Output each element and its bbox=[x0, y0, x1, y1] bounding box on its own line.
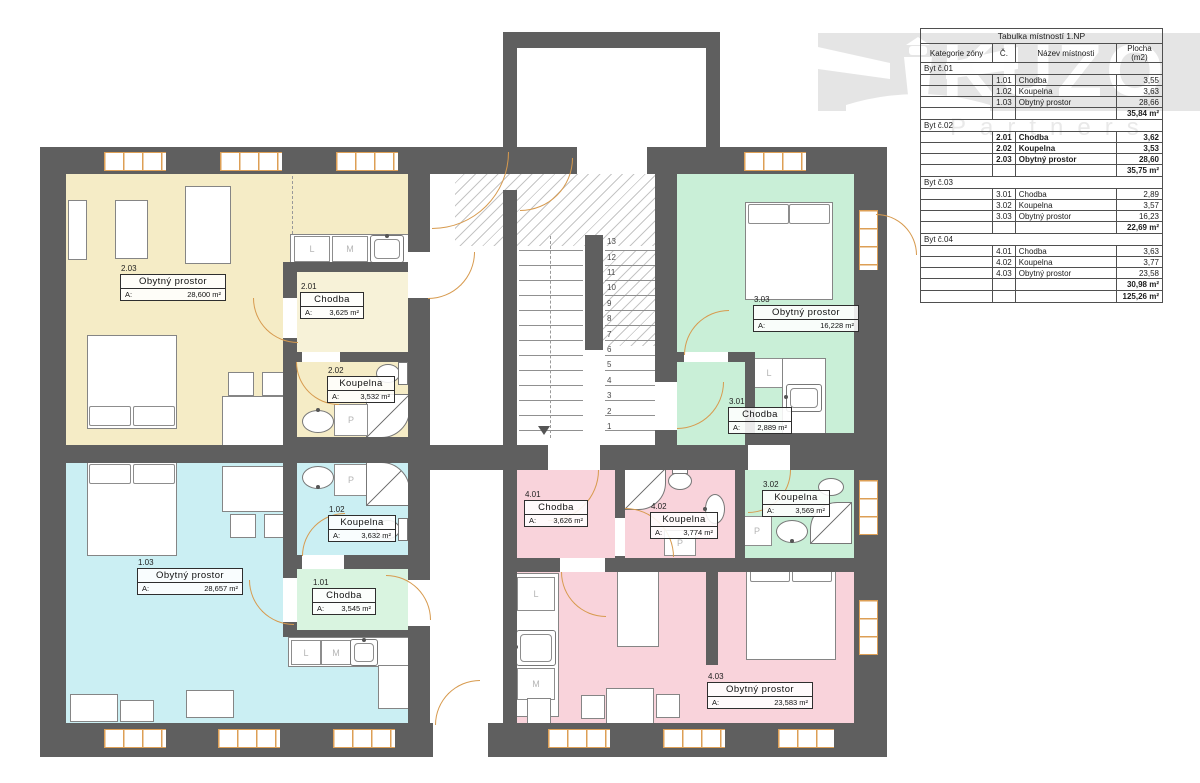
room-area-cell: 3,57 bbox=[1116, 200, 1162, 211]
zone-cell bbox=[921, 257, 993, 268]
window bbox=[104, 152, 166, 171]
sofa bbox=[186, 690, 234, 718]
room-row: 3.02Koupelna3,57 bbox=[921, 200, 1163, 211]
room-label-2-02: 2.02 Koupelna A:3,532 m² bbox=[327, 366, 395, 403]
room-no-cell: 1.02 bbox=[993, 86, 1016, 97]
room-row: 1.03Obytný prostor28,66 bbox=[921, 97, 1163, 108]
room-row: 1.02Koupelna3,63 bbox=[921, 86, 1163, 97]
stair-step-number: 10 bbox=[607, 284, 616, 292]
room-area-cell: 3,63 bbox=[1116, 246, 1162, 257]
chair bbox=[581, 695, 605, 719]
kitchen-sink bbox=[350, 639, 378, 666]
zone-cell bbox=[921, 154, 993, 165]
room-row: 2.03Obytný prostor28,60 bbox=[921, 154, 1163, 165]
room-name: Koupelna bbox=[329, 516, 395, 530]
window bbox=[218, 729, 280, 748]
room-no-cell: 2.02 bbox=[993, 143, 1016, 154]
area-value: 3,632 m² bbox=[361, 531, 391, 540]
wall-entrance-top bbox=[503, 32, 720, 48]
room-label-3-02: 3.02 Koupelna A:3,569 m² bbox=[762, 480, 830, 517]
room-number: 3.02 bbox=[763, 480, 830, 489]
area-value: 28,657 m² bbox=[204, 584, 238, 593]
area-label: A: bbox=[712, 698, 719, 707]
area-value: 3,532 m² bbox=[360, 392, 390, 401]
room-no-cell: 3.01 bbox=[993, 189, 1016, 200]
stair-step-number: 7 bbox=[607, 331, 611, 339]
zone-label: Byt č.01 bbox=[921, 63, 1163, 75]
sofa bbox=[617, 567, 659, 647]
window bbox=[744, 152, 806, 171]
stair-step-number: 9 bbox=[607, 300, 611, 308]
room-label-1-02: 1.02 Koupelna A:3,632 m² bbox=[328, 505, 396, 542]
window bbox=[859, 600, 878, 655]
room-name: Chodba bbox=[301, 293, 363, 307]
zone-label: Byt č.04 bbox=[921, 234, 1163, 246]
zone-row: Byt č.01 bbox=[921, 63, 1163, 75]
wall-byt4-h bbox=[503, 558, 854, 572]
subtotal-value: 30,98 m² bbox=[1116, 279, 1162, 291]
zone-row: Byt č.04 bbox=[921, 234, 1163, 246]
col-header-area: Plocha (m2) bbox=[1116, 44, 1162, 63]
stair-step-number: 11 bbox=[607, 269, 615, 277]
room-row: 2.02Koupelna3,53 bbox=[921, 143, 1163, 154]
wall-byt2-internal-h1 bbox=[283, 262, 408, 272]
room-no-cell: 4.03 bbox=[993, 268, 1016, 279]
room-no-cell: 1.01 bbox=[993, 75, 1016, 86]
window bbox=[333, 729, 395, 748]
wall-byt3-kitchen bbox=[755, 433, 854, 445]
room-name-cell: Chodba bbox=[1015, 189, 1116, 200]
bed-pillow bbox=[133, 464, 175, 484]
area-label: A: bbox=[317, 604, 324, 613]
total-row: 125,26 m² bbox=[921, 291, 1163, 303]
room-name-cell: Chodba bbox=[1015, 246, 1116, 257]
kitchen-zone-line bbox=[292, 176, 293, 234]
empty-cell bbox=[921, 222, 993, 234]
washing-machine-marker: P bbox=[742, 516, 772, 546]
room-no-cell: 4.01 bbox=[993, 246, 1016, 257]
door-opening bbox=[748, 445, 790, 470]
zone-label: Byt č.02 bbox=[921, 120, 1163, 132]
toilet-tank bbox=[398, 518, 408, 541]
stair-direction-arrow bbox=[538, 426, 550, 435]
bed-pillow bbox=[133, 406, 175, 426]
room-name-cell: Koupelna bbox=[1015, 257, 1116, 268]
room-area-cell: 3,62 bbox=[1116, 132, 1162, 143]
room-name-cell: Obytný prostor bbox=[1015, 154, 1116, 165]
area-label: A: bbox=[333, 531, 340, 540]
kitchen-counter bbox=[378, 665, 410, 709]
room-name-cell: Chodba bbox=[1015, 75, 1116, 86]
stair-step-number: 3 bbox=[607, 392, 611, 400]
sideboard bbox=[70, 694, 118, 722]
room-name: Obytný prostor bbox=[138, 569, 242, 583]
room-name-cell: Koupelna bbox=[1015, 86, 1116, 97]
room-no-cell: 2.03 bbox=[993, 154, 1016, 165]
entrance-door-opening bbox=[577, 147, 647, 174]
empty-cell bbox=[993, 165, 1016, 177]
room-name: Koupelna bbox=[328, 377, 394, 391]
wall-entrance-right bbox=[706, 32, 720, 147]
stair-step-number: 6 bbox=[607, 346, 611, 354]
zone-cell bbox=[921, 189, 993, 200]
area-label: A: bbox=[332, 392, 339, 401]
stair-step-number: 1 bbox=[607, 423, 611, 431]
empty-cell bbox=[1015, 165, 1116, 177]
kitchen-sink bbox=[516, 630, 556, 666]
wall-byt-divider-thick bbox=[283, 437, 408, 463]
zone-cell bbox=[921, 132, 993, 143]
room-area-cell: 16,23 bbox=[1116, 211, 1162, 222]
room-name: Chodba bbox=[525, 501, 587, 515]
zone-cell bbox=[921, 268, 993, 279]
room-number: 1.03 bbox=[138, 558, 243, 567]
stair-step-number: 4 bbox=[607, 377, 611, 385]
area-value: 3,569 m² bbox=[795, 506, 825, 515]
room-area-cell: 3,77 bbox=[1116, 257, 1162, 268]
empty-cell bbox=[1015, 279, 1116, 291]
wall-byt1-internal-h2 bbox=[283, 630, 408, 637]
room-row: 4.01Chodba3,63 bbox=[921, 246, 1163, 257]
stair-step-number: 5 bbox=[607, 361, 611, 369]
col-header-number: Č. bbox=[993, 44, 1016, 63]
area-value: 3,545 m² bbox=[341, 604, 371, 613]
stair-flight-left bbox=[519, 236, 583, 438]
empty-cell bbox=[921, 108, 993, 120]
room-no-cell: 3.03 bbox=[993, 211, 1016, 222]
fridge-marker: L bbox=[291, 640, 321, 665]
bed-pillow bbox=[89, 464, 131, 484]
zone-cell bbox=[921, 75, 993, 86]
wall-stair-newel bbox=[585, 235, 603, 350]
room-label-4-01: 4.01 Chodba A:3,626 m² bbox=[524, 490, 588, 527]
zone-cell bbox=[921, 143, 993, 154]
room-number: 3.03 bbox=[754, 295, 859, 304]
toilet-tank bbox=[398, 362, 408, 385]
room-name: Obytný prostor bbox=[121, 275, 225, 289]
door-opening bbox=[302, 352, 340, 362]
washbasin bbox=[302, 466, 334, 489]
washbasin bbox=[302, 410, 334, 433]
window bbox=[663, 729, 725, 748]
door-swing bbox=[428, 252, 475, 299]
area-label: A: bbox=[529, 516, 536, 525]
area-value: 28,600 m² bbox=[187, 290, 221, 299]
sofa bbox=[185, 186, 231, 264]
area-value: 3,774 m² bbox=[683, 528, 713, 537]
stair-step-number: 8 bbox=[607, 315, 611, 323]
room-number: 2.02 bbox=[328, 366, 395, 375]
zone-cell bbox=[921, 211, 993, 222]
back-door-opening bbox=[433, 723, 488, 757]
room-row: 4.03Obytný prostor23,58 bbox=[921, 268, 1163, 279]
room-label-1-03: 1.03 Obytný prostor A:28,657 m² bbox=[137, 558, 243, 595]
room-row: 4.02Koupelna3,77 bbox=[921, 257, 1163, 268]
wall-entrance-left bbox=[503, 32, 517, 147]
subtotal-row: 35,84 m² bbox=[921, 108, 1163, 120]
window bbox=[859, 480, 878, 535]
zone-cell bbox=[921, 97, 993, 108]
wall-outer-left bbox=[40, 147, 66, 757]
zone-cell bbox=[921, 246, 993, 257]
room-no-cell: 2.01 bbox=[993, 132, 1016, 143]
washing-machine-marker: P bbox=[334, 464, 368, 496]
room-label-3-01: 3.01 Chodba A:2,889 m² bbox=[728, 397, 792, 434]
wall-stairwell-left-lower bbox=[503, 445, 517, 723]
stair-step-number: 13 bbox=[607, 238, 616, 246]
room-name-cell: Chodba bbox=[1015, 132, 1116, 143]
subtotal-value: 35,84 m² bbox=[1116, 108, 1162, 120]
room-label-4-02: 4.02 Koupelna A:3,774 m² bbox=[650, 502, 718, 539]
room-number: 1.01 bbox=[313, 578, 376, 587]
area-label: A: bbox=[142, 584, 149, 593]
stair-centerline bbox=[550, 236, 551, 438]
chair bbox=[656, 694, 680, 718]
door-opening bbox=[302, 555, 344, 569]
room-area-cell: 28,60 bbox=[1116, 154, 1162, 165]
bed-pillow bbox=[89, 406, 131, 426]
empty-cell bbox=[1015, 291, 1116, 303]
door-opening bbox=[548, 445, 600, 470]
room-label-4-03: 4.03 Obytný prostor A:23,583 m² bbox=[707, 672, 813, 709]
room-number: 4.02 bbox=[651, 502, 718, 511]
room-row: 3.01Chodba2,89 bbox=[921, 189, 1163, 200]
room-name: Obytný prostor bbox=[754, 306, 858, 320]
empty-cell bbox=[993, 291, 1016, 303]
room-label-2-03: 2.03 Obytný prostor A:28,600 m² bbox=[120, 264, 226, 301]
empty-cell bbox=[993, 222, 1016, 234]
col-header-name: Název místnosti bbox=[1015, 44, 1116, 63]
empty-cell bbox=[1015, 222, 1116, 234]
room-number: 2.01 bbox=[301, 282, 364, 291]
dishwasher-marker: M bbox=[321, 640, 351, 665]
area-value: 3,626 m² bbox=[553, 516, 583, 525]
washbasin bbox=[776, 520, 808, 543]
wall-stairwell-left bbox=[503, 190, 517, 445]
wall-byt4-bath-byt3bath bbox=[735, 470, 745, 558]
bed-pillow bbox=[789, 204, 830, 224]
room-name-cell: Koupelna bbox=[1015, 143, 1116, 154]
room-no-cell: 3.02 bbox=[993, 200, 1016, 211]
subtotal-value: 35,75 m² bbox=[1116, 165, 1162, 177]
dining-table bbox=[222, 466, 290, 512]
door-swing bbox=[435, 680, 480, 725]
area-label: A: bbox=[655, 528, 662, 537]
room-area-cell: 3,63 bbox=[1116, 86, 1162, 97]
room-number: 4.03 bbox=[708, 672, 813, 681]
room-no-cell: 1.03 bbox=[993, 97, 1016, 108]
area-value: 16,228 m² bbox=[820, 321, 854, 330]
room-name: Koupelna bbox=[651, 513, 717, 527]
window bbox=[336, 152, 398, 171]
dishwasher-marker: M bbox=[517, 668, 555, 700]
room-number: 3.01 bbox=[729, 397, 792, 406]
room-schedule-table: Tabulka místností 1.NP Kategorie zóny Č.… bbox=[920, 28, 1163, 303]
fridge-marker: L bbox=[517, 577, 555, 611]
area-label: A: bbox=[305, 308, 312, 317]
room-row: 1.01Chodba3,55 bbox=[921, 75, 1163, 86]
empty-cell bbox=[993, 279, 1016, 291]
door-opening bbox=[560, 558, 605, 572]
room-name: Obytný prostor bbox=[708, 683, 812, 697]
wardrobe bbox=[68, 200, 87, 260]
sideboard bbox=[120, 700, 154, 722]
area-label: A: bbox=[125, 290, 132, 299]
toilet bbox=[668, 472, 692, 490]
area-value: 23,583 m² bbox=[774, 698, 808, 707]
stair-step-number: 2 bbox=[607, 408, 611, 416]
dining-table bbox=[606, 688, 654, 726]
entrance-vestibule-floor bbox=[517, 48, 706, 147]
empty-cell bbox=[1015, 108, 1116, 120]
subtotal-row: 30,98 m² bbox=[921, 279, 1163, 291]
side-table bbox=[527, 698, 551, 725]
room-no-cell: 4.02 bbox=[993, 257, 1016, 268]
window bbox=[104, 729, 166, 748]
dining-table bbox=[222, 396, 290, 446]
wall-byt4-stub bbox=[706, 565, 718, 665]
room-area-cell: 23,58 bbox=[1116, 268, 1162, 279]
zone-cell bbox=[921, 86, 993, 97]
empty-cell bbox=[921, 291, 993, 303]
room-area-cell: 3,53 bbox=[1116, 143, 1162, 154]
window bbox=[220, 152, 282, 171]
room-area-cell: 3,55 bbox=[1116, 75, 1162, 86]
room-name: Koupelna bbox=[763, 491, 829, 505]
subtotal-row: 35,75 m² bbox=[921, 165, 1163, 177]
wardrobe bbox=[115, 200, 148, 259]
room-name-cell: Koupelna bbox=[1015, 200, 1116, 211]
bed-pillow bbox=[748, 204, 789, 224]
zone-label: Byt č.03 bbox=[921, 177, 1163, 189]
room-name-cell: Obytný prostor bbox=[1015, 268, 1116, 279]
total-value: 125,26 m² bbox=[1116, 291, 1162, 303]
table-title: Tabulka místností 1.NP bbox=[921, 29, 1163, 44]
room-name-cell: Obytný prostor bbox=[1015, 211, 1116, 222]
room-area-cell: 2,89 bbox=[1116, 189, 1162, 200]
chair bbox=[230, 514, 256, 538]
room-name: Chodba bbox=[313, 589, 375, 603]
area-label: A: bbox=[767, 506, 774, 515]
area-label: A: bbox=[758, 321, 765, 330]
legend-table-body: Byt č.011.01Chodba3,551.02Koupelna3,631.… bbox=[921, 63, 1163, 303]
room-number: 4.01 bbox=[525, 490, 588, 499]
area-label: A: bbox=[733, 423, 740, 432]
chair bbox=[228, 372, 254, 396]
empty-cell bbox=[921, 165, 993, 177]
window bbox=[778, 729, 834, 748]
fridge-marker: L bbox=[294, 236, 330, 262]
subtotal-value: 22,69 m² bbox=[1116, 222, 1162, 234]
empty-cell bbox=[921, 279, 993, 291]
room-label-3-03: 3.03 Obytný prostor A:16,228 m² bbox=[753, 295, 859, 332]
door-opening bbox=[408, 252, 430, 298]
col-header-category: Kategorie zóny bbox=[921, 44, 993, 63]
room-number: 2.03 bbox=[121, 264, 226, 273]
empty-cell bbox=[993, 108, 1016, 120]
zone-row: Byt č.02 bbox=[921, 120, 1163, 132]
room-name: Chodba bbox=[729, 408, 791, 422]
subtotal-row: 22,69 m² bbox=[921, 222, 1163, 234]
window bbox=[548, 729, 610, 748]
kitchen-sink bbox=[370, 235, 404, 263]
room-row: 2.01Chodba3,62 bbox=[921, 132, 1163, 143]
fridge-marker: L bbox=[754, 358, 784, 388]
room-row: 3.03Obytný prostor16,23 bbox=[921, 211, 1163, 222]
area-value: 3,625 m² bbox=[329, 308, 359, 317]
floor-plan-sheet: KUZO Partners 12345678910111213 L M L M bbox=[0, 0, 1200, 783]
door-opening bbox=[615, 518, 625, 556]
door-swing bbox=[876, 214, 917, 255]
room-label-1-01: 1.01 Chodba A:3,545 m² bbox=[312, 578, 376, 615]
area-value: 2,889 m² bbox=[757, 423, 787, 432]
room-label-2-01: 2.01 Chodba A:3,625 m² bbox=[300, 282, 364, 319]
room-area-cell: 28,66 bbox=[1116, 97, 1162, 108]
dishwasher-marker: M bbox=[332, 236, 368, 262]
room-number: 1.02 bbox=[329, 505, 396, 514]
washing-machine-marker: P bbox=[334, 404, 368, 436]
stair-step-number: 12 bbox=[607, 254, 616, 262]
room-name-cell: Obytný prostor bbox=[1015, 97, 1116, 108]
zone-row: Byt č.03 bbox=[921, 177, 1163, 189]
door-opening bbox=[655, 382, 677, 430]
zone-cell bbox=[921, 200, 993, 211]
